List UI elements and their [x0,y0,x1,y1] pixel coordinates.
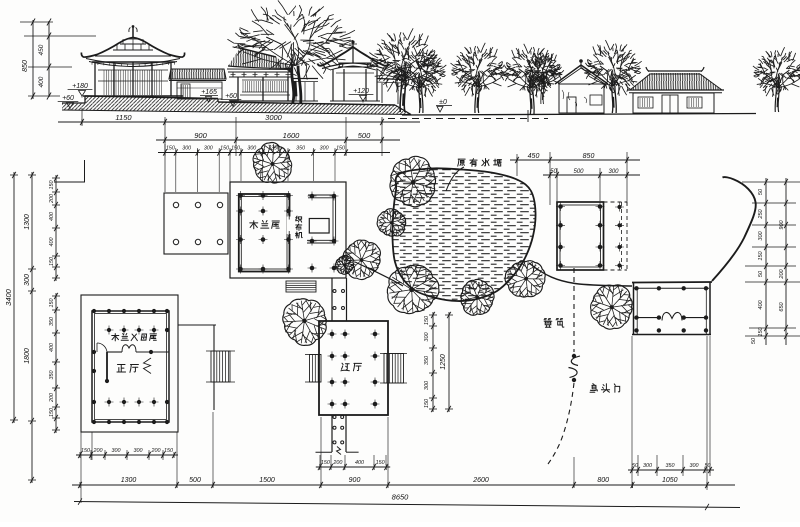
svg-text:200: 200 [49,393,55,403]
svg-text:±0: ±0 [439,99,447,106]
svg-text:400: 400 [49,212,55,221]
svg-text:350: 350 [424,355,430,365]
svg-text:850: 850 [22,60,29,72]
svg-text:+60: +60 [62,95,74,102]
svg-text:150: 150 [166,146,175,152]
svg-text:50: 50 [705,463,711,469]
svg-text:150: 150 [49,408,55,417]
svg-text:300: 300 [690,463,699,469]
svg-text:200: 200 [49,194,55,204]
svg-text:+60: +60 [225,93,237,100]
svg-text:50: 50 [758,188,764,195]
svg-text:3000: 3000 [265,113,283,122]
svg-text:1150: 1150 [115,113,132,122]
svg-text:500: 500 [573,169,584,175]
svg-text:150: 150 [81,448,90,454]
svg-text:650: 650 [779,301,785,311]
svg-text:250: 250 [758,208,764,219]
svg-text:8650: 8650 [392,493,410,502]
svg-text:400: 400 [38,76,45,87]
svg-text:300: 300 [643,463,652,469]
svg-text:150: 150 [376,460,385,466]
svg-text:200: 200 [93,448,103,454]
svg-text:150: 150 [424,398,430,408]
svg-text:450: 450 [528,153,540,160]
svg-text:3400: 3400 [4,288,13,306]
svg-text:400: 400 [355,460,364,466]
svg-text:1250: 1250 [440,354,447,370]
svg-text:150: 150 [758,326,764,336]
svg-text:350: 350 [666,463,675,469]
svg-text:150: 150 [164,448,173,454]
svg-text:1500: 1500 [259,477,275,484]
svg-text:1800: 1800 [24,348,31,364]
svg-text:1600: 1600 [283,131,301,140]
svg-text:350: 350 [296,146,305,152]
svg-text:150: 150 [336,146,345,152]
svg-text:300: 300 [320,146,329,152]
svg-text:50: 50 [751,337,757,344]
svg-text:1300: 1300 [121,477,137,484]
svg-text:1050: 1050 [662,477,678,484]
svg-text:900: 900 [779,219,785,229]
svg-text:150: 150 [49,299,55,308]
svg-text:300: 300 [112,448,121,454]
svg-text:2600: 2600 [472,477,489,484]
svg-text:150: 150 [231,146,240,152]
svg-text:800: 800 [597,477,609,484]
svg-text:+120: +120 [353,88,369,95]
svg-text:300: 300 [424,331,430,341]
svg-text:900: 900 [349,477,361,484]
svg-text:150: 150 [49,181,55,190]
svg-text:450: 450 [38,44,45,55]
svg-text:500: 500 [358,131,371,140]
svg-text:500: 500 [189,477,201,484]
svg-text:300: 300 [424,380,430,390]
svg-text:150: 150 [220,146,229,152]
svg-text:300: 300 [134,448,143,454]
svg-text:+180: +180 [72,83,88,90]
svg-text:300: 300 [608,169,619,175]
svg-text:150: 150 [49,257,55,266]
svg-text:50: 50 [550,169,557,175]
svg-text:150: 150 [321,460,330,466]
svg-text:300: 300 [204,146,213,152]
svg-text:200: 200 [779,268,785,279]
svg-text:+165: +165 [201,89,217,96]
svg-text:900: 900 [194,131,207,140]
svg-text:150: 150 [758,250,764,260]
svg-text:400: 400 [758,299,764,309]
svg-text:350: 350 [49,371,55,380]
svg-text:400: 400 [49,238,55,247]
svg-text:50: 50 [632,463,638,469]
svg-text:300: 300 [758,230,764,240]
svg-text:50: 50 [758,270,764,277]
svg-text:300: 300 [24,274,31,286]
svg-text:850: 850 [583,153,595,160]
svg-text:300: 300 [182,146,191,152]
svg-text:400: 400 [49,343,55,352]
svg-text:1300: 1300 [24,214,31,230]
svg-text:150: 150 [424,315,430,325]
svg-text:200: 200 [332,460,342,466]
svg-text:200: 200 [151,448,161,454]
svg-text:300: 300 [247,146,256,152]
svg-text:350: 350 [49,317,55,326]
